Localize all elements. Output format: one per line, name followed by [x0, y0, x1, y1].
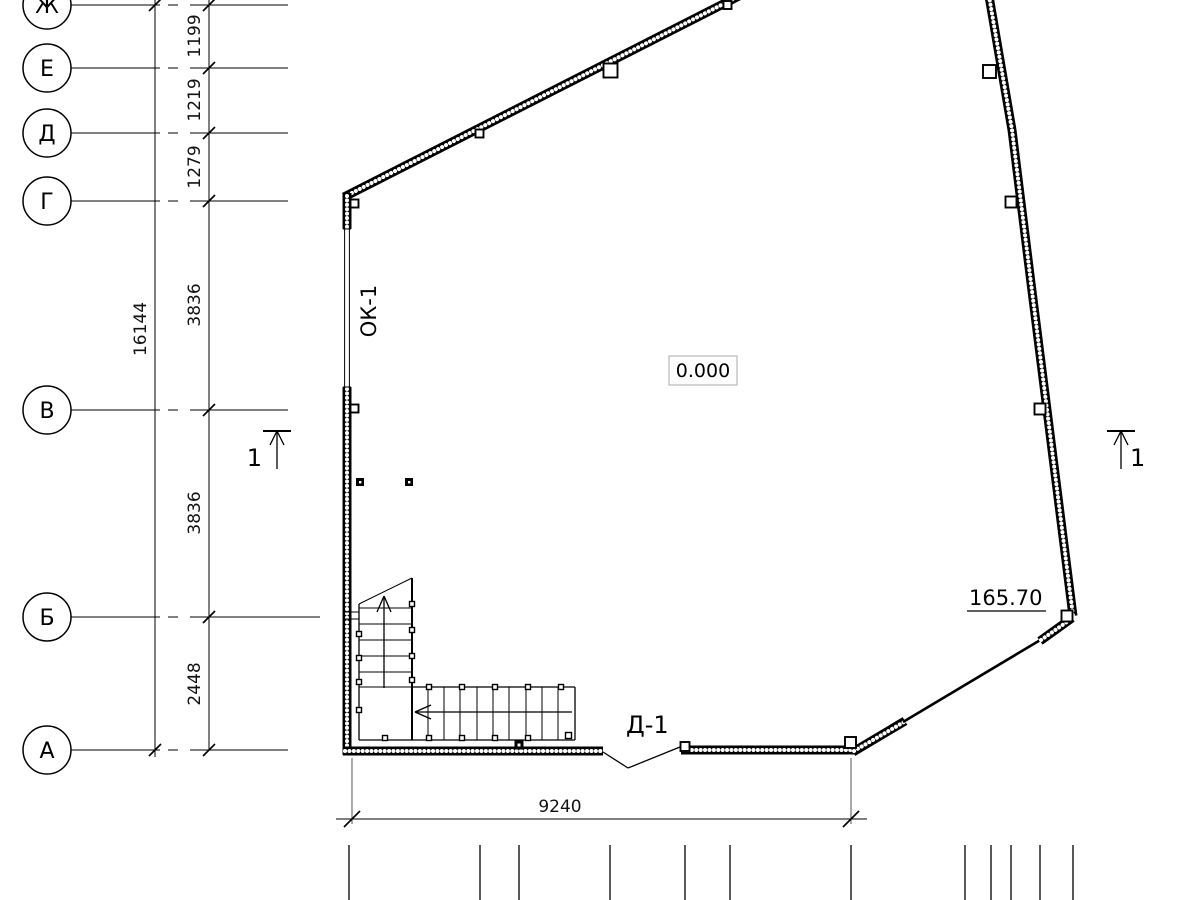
wall-marker: [1062, 611, 1073, 622]
section-mark-right: 1: [1107, 431, 1145, 472]
wall-marker: [724, 1, 732, 9]
grid-bubble-v: В: [39, 399, 54, 424]
dim-zh-e: 1199: [185, 14, 205, 57]
door-tag-text: Д-1: [626, 711, 669, 739]
window-tag-text: ОК-1: [357, 285, 381, 337]
segment-dim-line: 1199 1219 1279 3836 3836 2448: [185, 0, 215, 756]
bottom-dim-text: 9240: [538, 797, 581, 817]
wall-marker: [681, 742, 690, 751]
section-number-text: 1: [1130, 444, 1145, 472]
wall-marker: [1006, 197, 1017, 208]
dim-e-d: 1219: [185, 78, 205, 121]
grid-axes: Ж Е Д Г В: [23, 0, 320, 774]
door-d1: Д-1: [603, 711, 680, 768]
section-mark-left: 1: [247, 431, 291, 472]
wall-column: [515, 741, 524, 750]
wall-marker: [351, 405, 359, 413]
wall-marker: [983, 65, 996, 78]
overall-dim-text: 16144: [131, 302, 151, 356]
interior-column: [405, 478, 413, 486]
wall-marker: [604, 64, 618, 78]
grid-bubble-g: Г: [40, 190, 53, 215]
dim-d-g: 1279: [185, 145, 205, 188]
wall-marker: [1035, 404, 1046, 415]
level-mark-text: 0.000: [676, 360, 730, 382]
window-ok1: ОК-1: [343, 229, 381, 387]
stair-up-arrow: [377, 596, 391, 688]
floor-plan-svg: 16144 1199 1219 1279 3836 3836 2448: [0, 0, 1200, 900]
grid-bubble-zh: Ж: [35, 0, 59, 19]
wall-marker: [351, 200, 359, 208]
overall-dim-line: 16144: [131, 0, 161, 757]
wall-marker: [845, 737, 856, 748]
staircase: [344, 578, 575, 741]
interior-column: [356, 478, 364, 486]
wall-marker: [476, 130, 484, 138]
bottom-dimension: 9240: [336, 758, 867, 827]
level-mark: 0.000: [669, 356, 737, 385]
elevation-mark-text: 165.70: [969, 586, 1042, 610]
drawing-sheet: 16144 1199 1219 1279 3836 3836 2448: [0, 0, 1200, 900]
dim-g-v: 3836: [185, 283, 205, 326]
elevation-mark: 165.70: [967, 586, 1046, 611]
dim-v-b: 3836: [185, 491, 205, 534]
grid-axis-b: Б: [23, 593, 320, 641]
lower-extension-lines: [349, 845, 1073, 900]
dim-b-a: 2448: [185, 662, 205, 705]
grid-system: 16144 1199 1219 1279 3836 3836 2448: [23, 0, 320, 774]
grid-bubble-b: Б: [39, 606, 54, 631]
grid-bubble-d: Д: [38, 122, 55, 147]
grid-bubble-e: Е: [40, 57, 54, 82]
section-number-text: 1: [247, 444, 262, 472]
grid-bubble-a: А: [39, 739, 54, 764]
se-opening-line: [903, 639, 1042, 722]
stair-posts: [357, 602, 572, 741]
